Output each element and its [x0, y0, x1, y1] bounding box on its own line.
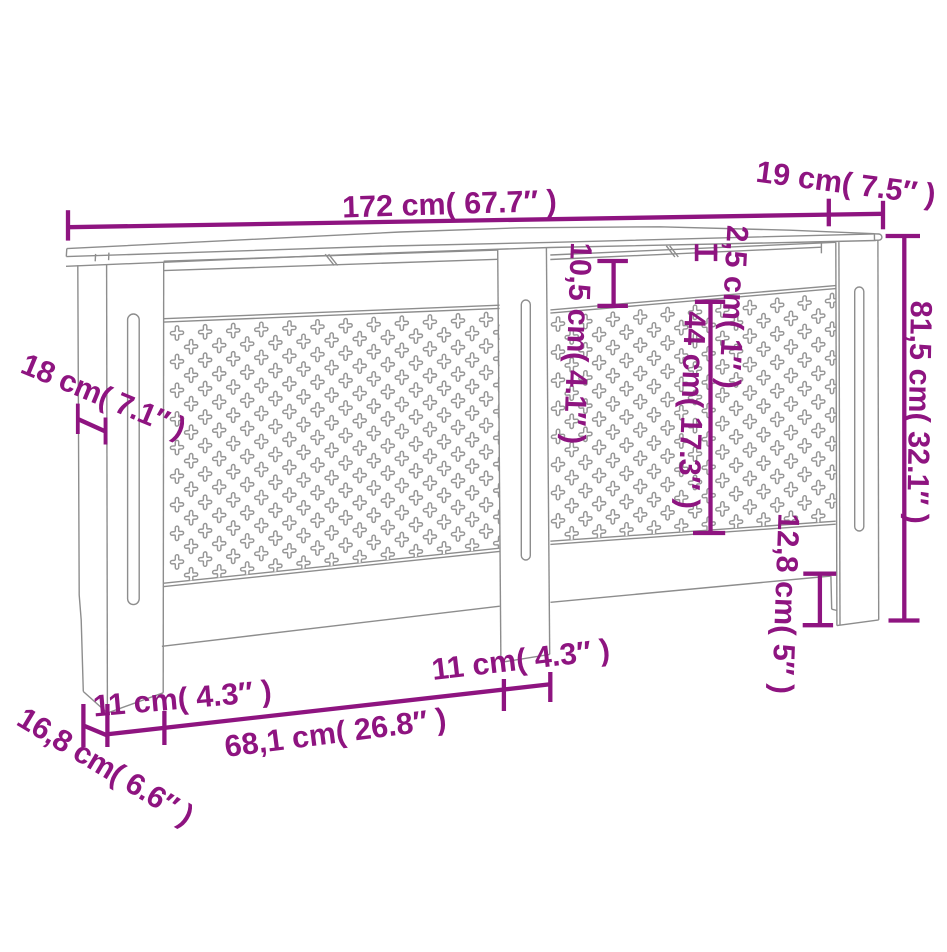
svg-text:12,8 cm( 5″ ): 12,8 cm( 5″ ) [765, 513, 805, 695]
svg-text:10,5 cm( 4.1″ ): 10,5 cm( 4.1″ ) [557, 242, 598, 445]
svg-text:44 cm( 17.3″ ): 44 cm( 17.3″ ) [671, 311, 712, 510]
svg-text:81,5 cm( 32.1″ ): 81,5 cm( 32.1″ ) [900, 300, 938, 524]
svg-text:172 cm( 67.7″ ): 172 cm( 67.7″ ) [342, 184, 558, 225]
